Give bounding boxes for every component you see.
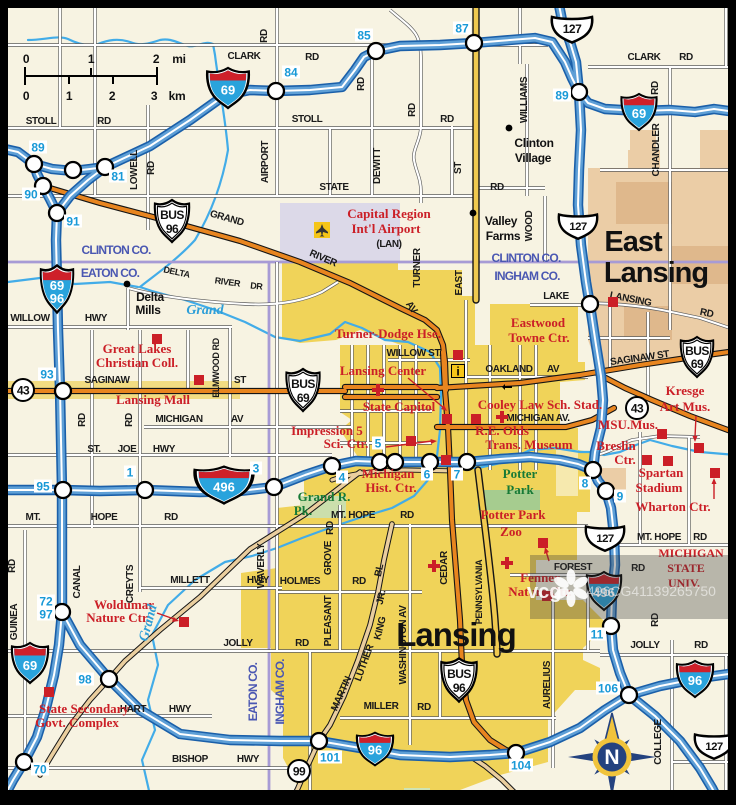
svg-text:HWY: HWY [169,704,192,715]
svg-text:69: 69 [632,106,646,121]
svg-text:8: 8 [582,477,589,491]
svg-text:Village: Village [515,151,552,165]
svg-text:RD: RD [356,77,367,91]
svg-text:93: 93 [40,368,54,382]
svg-text:GROVE: GROVE [323,540,334,575]
svg-text:43: 43 [17,384,30,398]
svg-text:RD: RD [97,116,111,127]
svg-text:WILLOW ST.: WILLOW ST. [387,348,442,359]
svg-text:CANAL: CANAL [72,565,83,598]
svg-text:R.E. Olds: R.E. Olds [475,423,529,438]
svg-text:Christian Coll.: Christian Coll. [96,355,178,370]
svg-text:RD: RD [694,640,708,651]
svg-text:CLINTON CO.: CLINTON CO. [492,251,561,265]
svg-text:RD: RD [650,81,661,95]
svg-text:ST.: ST. [87,444,101,455]
svg-text:Capital Region: Capital Region [347,206,431,221]
svg-text:104: 104 [511,759,531,773]
svg-text:Kresge: Kresge [666,383,705,398]
svg-text:COLLEGE: COLLEGE [653,719,664,765]
svg-text:HOLMES: HOLMES [280,576,321,587]
svg-text:LOWELL: LOWELL [129,150,140,190]
svg-text:1: 1 [127,466,134,480]
svg-text:11: 11 [591,628,604,642]
svg-text:SAGINAW: SAGINAW [85,375,131,386]
svg-text:84: 84 [284,66,298,80]
svg-text:MICHIGAN: MICHIGAN [155,414,203,425]
svg-text:Grand: Grand [186,303,224,318]
svg-text:89: 89 [555,89,569,103]
svg-text:Pk.: Pk. [294,503,312,518]
svg-text:STATE: STATE [319,182,349,193]
svg-text:CHANDLER: CHANDLER [651,122,662,176]
svg-text:Park: Park [506,482,534,497]
svg-text:70: 70 [33,763,47,777]
svg-text:CEDAR: CEDAR [439,550,450,585]
svg-text:DR: DR [250,280,264,291]
svg-text:Potter Park: Potter Park [480,507,546,522]
svg-text:Eastwood: Eastwood [511,315,566,330]
svg-text:RD: RD [400,510,414,521]
svg-text:LAKE: LAKE [543,291,569,302]
svg-text:95: 95 [36,480,50,494]
svg-text:MT. HOPE: MT. HOPE [331,510,376,521]
svg-text:Clinton: Clinton [514,136,553,150]
svg-text:BUS: BUS [685,344,709,358]
svg-text:127: 127 [563,22,582,36]
svg-text:Michigan: Michigan [362,466,415,481]
svg-text:85: 85 [357,29,371,43]
svg-text:WAVERLY: WAVERLY [256,543,267,589]
svg-text:PLEASANT: PLEASANT [323,595,334,646]
svg-text:HWY: HWY [85,313,108,324]
svg-text:90: 90 [24,188,38,202]
svg-text:Stadium: Stadium [636,480,683,495]
svg-text:GUINEA: GUINEA [9,604,20,641]
svg-text:127: 127 [569,221,587,233]
svg-text:4: 4 [339,471,346,485]
svg-text:69: 69 [691,357,704,371]
svg-text:EATON CO.: EATON CO. [81,266,140,280]
svg-text:Turner-Dodge Hse.: Turner-Dodge Hse. [335,326,441,341]
svg-text:RD: RD [693,532,707,543]
svg-text:CLARK: CLARK [228,51,262,62]
svg-text:N: N [604,746,619,769]
svg-text:6: 6 [424,468,431,482]
svg-text:Art Mus.: Art Mus. [660,399,711,414]
svg-text:km: km [169,89,186,103]
svg-text:East: East [604,226,663,258]
svg-text:JOLLY: JOLLY [223,638,253,649]
svg-text:RD: RD [407,103,418,117]
svg-text:127: 127 [705,741,723,753]
svg-text:AV: AV [547,364,560,375]
svg-text:72: 72 [39,595,53,609]
svg-text:Hist. Ctr.: Hist. Ctr. [365,480,416,495]
svg-text:INGHAM CO.: INGHAM CO. [273,659,287,725]
svg-text:Sci. Ctr.: Sci. Ctr. [324,436,369,451]
svg-text:JOLLY: JOLLY [630,640,660,651]
svg-text:RD: RD [440,114,454,125]
svg-text:MT. HOPE: MT. HOPE [637,532,682,543]
svg-text:96: 96 [166,222,179,236]
svg-text:MILLETT: MILLETT [170,575,210,586]
svg-text:101: 101 [320,751,340,765]
svg-text:MT.: MT. [26,512,42,523]
svg-text:98: 98 [78,673,92,687]
svg-text:TURNER: TURNER [412,247,423,287]
svg-text:87: 87 [455,22,469,36]
svg-text:CLARK: CLARK [628,52,662,63]
svg-text:DEWITT: DEWITT [372,148,383,184]
svg-text:RD: RD [7,559,18,573]
svg-text:AIRPORT: AIRPORT [260,141,271,183]
svg-text:CLINTON CO.: CLINTON CO. [82,243,151,257]
svg-text:MSU.Mus.: MSU.Mus. [598,417,658,432]
svg-text:69: 69 [221,83,235,98]
svg-text:EAST: EAST [454,270,465,295]
svg-text:RD: RD [124,413,135,427]
svg-text:3: 3 [151,89,158,103]
svg-text:EATON CO.: EATON CO. [246,662,260,721]
svg-text:1: 1 [88,52,95,66]
svg-text:0: 0 [23,52,30,66]
svg-text:Spartan: Spartan [639,465,685,480]
svg-text:Farms: Farms [486,229,521,243]
svg-text:Cooley Law Sch. Stad.: Cooley Law Sch. Stad. [478,397,603,412]
svg-text:mi: mi [172,52,185,66]
svg-text:RD: RD [305,52,319,63]
svg-text:Mills: Mills [135,303,161,317]
svg-text:99: 99 [293,765,306,779]
svg-text:HWY: HWY [153,444,176,455]
svg-text:Grand R.: Grand R. [298,489,351,504]
svg-text:5: 5 [375,437,382,451]
svg-text:7: 7 [454,468,461,482]
svg-text:i: i [456,365,459,379]
svg-text:2: 2 [153,52,160,66]
svg-text:WILLIAMS: WILLIAMS [519,76,530,123]
svg-text:69: 69 [297,391,310,405]
svg-text:STOLL: STOLL [292,114,323,125]
svg-text:BUS: BUS [160,208,184,222]
svg-text:PENNSYLVANIA: PENNSYLVANIA [474,559,484,624]
svg-text:MILLER: MILLER [364,701,400,712]
svg-text:Towne Ctr.: Towne Ctr. [508,330,569,345]
svg-text:RD: RD [325,521,336,535]
svg-text:HOPE: HOPE [91,512,118,523]
svg-text:9: 9 [617,490,624,504]
svg-text:AV: AV [231,414,244,425]
svg-text:96: 96 [50,291,64,306]
svg-text:Trans. Museum: Trans. Museum [485,437,572,452]
svg-text:RD: RD [417,702,431,713]
svg-text:Lansing Center: Lansing Center [340,363,427,378]
svg-text:RD: RD [490,182,504,193]
svg-text:Lansing: Lansing [604,257,708,289]
svg-text:Delta: Delta [136,290,164,304]
svg-text:96: 96 [453,681,466,695]
svg-text:89: 89 [31,141,45,155]
svg-text:BUS: BUS [291,377,315,391]
svg-text:WOOD: WOOD [524,211,535,242]
svg-text:BISHOP: BISHOP [172,754,209,765]
svg-text:69: 69 [23,658,37,673]
svg-text:1: 1 [66,89,73,103]
svg-text:Wharton Ctr.: Wharton Ctr. [635,499,710,514]
svg-text:127: 127 [596,533,614,545]
svg-text:(LAN): (LAN) [376,239,401,250]
svg-text:WILLOW: WILLOW [10,313,50,324]
svg-text:496: 496 [213,480,235,495]
svg-text:State Capitol: State Capitol [363,399,436,414]
svg-text:97: 97 [39,608,53,622]
svg-text:Zoo: Zoo [500,524,522,539]
svg-text:106: 106 [598,682,618,696]
svg-text:0: 0 [23,89,30,103]
svg-text:RD: RD [77,413,88,427]
svg-text:AURELIUS: AURELIUS [542,660,553,709]
svg-text:496CG41139265750: 496CG41139265750 [587,583,716,599]
svg-text:Govt. Complex: Govt. Complex [35,715,119,730]
svg-text:OAKLAND: OAKLAND [485,364,532,375]
svg-text:State Secondary: State Secondary [39,701,129,716]
svg-text:81: 81 [111,170,125,184]
svg-text:RD: RD [259,29,270,43]
svg-text:96: 96 [368,743,382,758]
svg-text:RD: RD [164,512,178,523]
svg-text:2: 2 [109,89,116,103]
svg-text:Potter: Potter [503,466,538,481]
svg-text:43: 43 [631,402,644,416]
svg-text:JOE: JOE [118,444,138,455]
svg-text:91: 91 [66,215,80,229]
svg-text:RD: RD [146,161,157,175]
svg-text:Valley: Valley [485,214,518,228]
svg-text:Breslin: Breslin [596,438,636,453]
svg-text:Ctr.: Ctr. [614,452,636,467]
svg-text:Int'l Airport: Int'l Airport [352,221,422,236]
svg-text:STOLL: STOLL [26,116,57,127]
svg-text:BUS: BUS [447,667,471,681]
svg-text:ST: ST [453,162,464,174]
svg-text:HWY: HWY [237,754,260,765]
svg-text:ST: ST [234,375,246,386]
svg-text:RD: RD [295,638,309,649]
svg-text:3: 3 [253,462,260,476]
svg-text:Lansing Mall: Lansing Mall [116,392,190,407]
svg-text:vcg: vcg [527,581,561,603]
svg-text:RD: RD [352,576,366,587]
svg-text:ELMWOOD RD: ELMWOOD RD [211,337,221,397]
svg-text:Lansing: Lansing [396,616,516,653]
svg-text:96: 96 [688,673,702,688]
svg-text:INGHAM CO.: INGHAM CO. [494,269,560,283]
svg-text:RD: RD [679,52,693,63]
